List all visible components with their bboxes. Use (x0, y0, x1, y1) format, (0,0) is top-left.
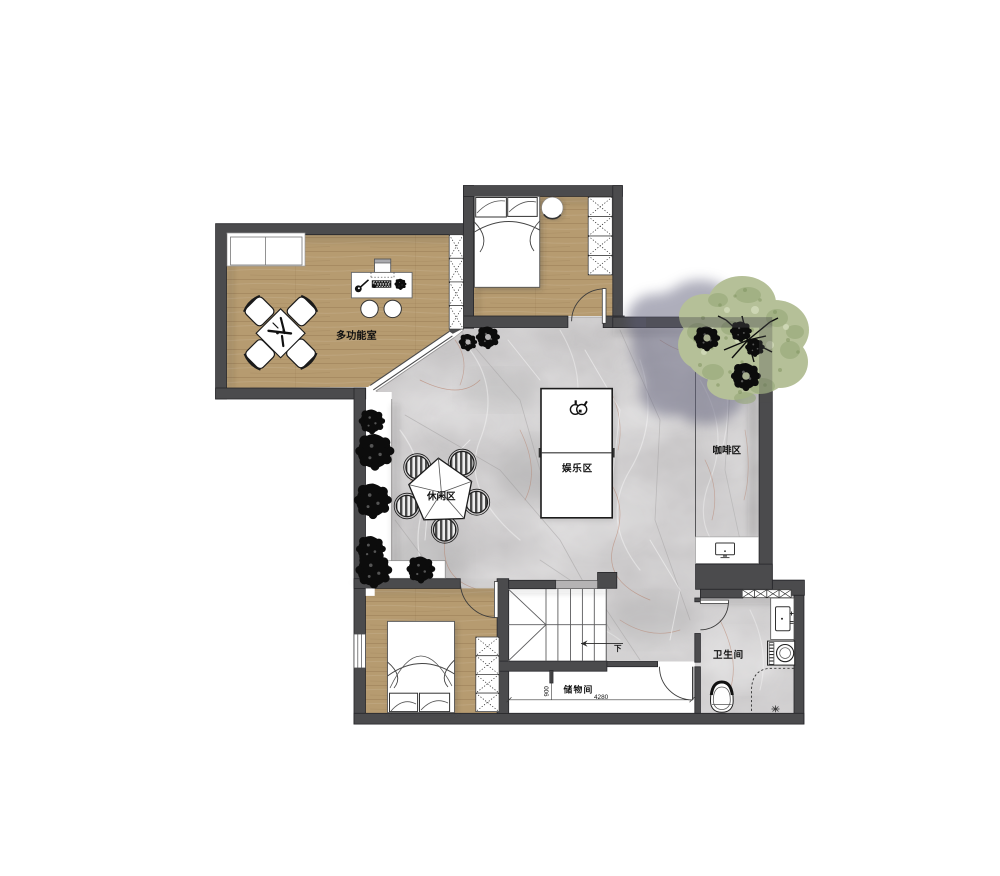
svg-text:卫生间: 卫生间 (713, 649, 744, 661)
svg-text:休闲区: 休闲区 (426, 491, 456, 503)
svg-text:900: 900 (544, 686, 551, 697)
svg-text:储物间: 储物间 (564, 684, 594, 695)
svg-text:娱乐区: 娱乐区 (562, 463, 593, 475)
svg-text:下: 下 (614, 644, 622, 653)
svg-text:多功能室: 多功能室 (336, 329, 377, 342)
svg-text:4280: 4280 (594, 694, 609, 701)
svg-text:咖啡区: 咖啡区 (713, 445, 742, 457)
